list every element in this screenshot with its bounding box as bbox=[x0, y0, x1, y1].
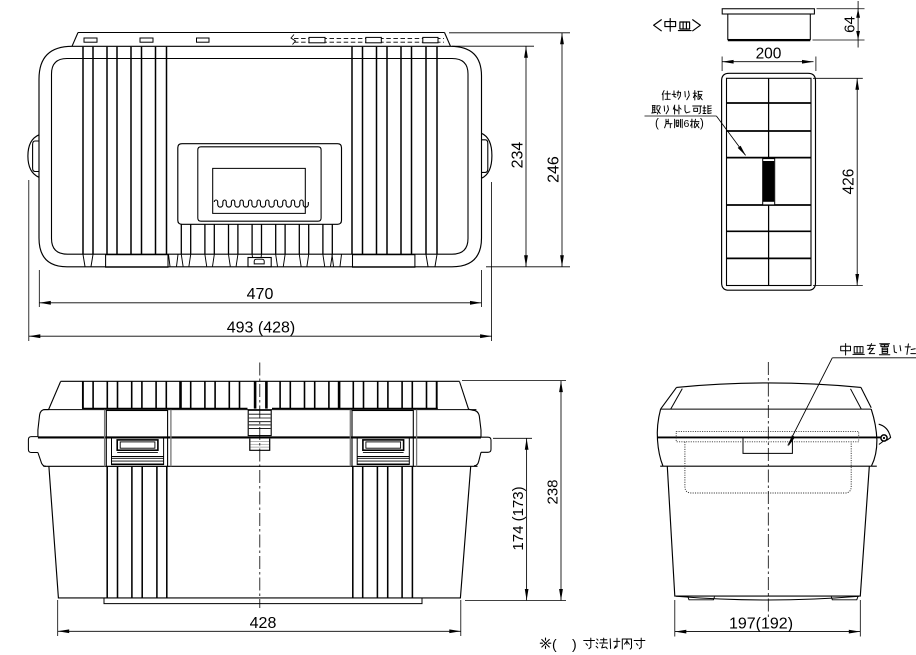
svg-text:493 (428): 493 (428) bbox=[227, 320, 296, 337]
svg-text:200: 200 bbox=[756, 46, 782, 63]
svg-text:428: 428 bbox=[250, 615, 277, 632]
svg-text:234: 234 bbox=[510, 142, 527, 169]
svg-text:197(192): 197(192) bbox=[729, 615, 793, 632]
svg-text:238: 238 bbox=[545, 479, 562, 504]
svg-text:174 (173): 174 (173) bbox=[510, 486, 527, 550]
svg-text:246: 246 bbox=[546, 156, 563, 183]
svg-text:426: 426 bbox=[841, 169, 858, 195]
svg-text:470: 470 bbox=[247, 286, 274, 303]
svg-text:(: ( bbox=[552, 636, 557, 652]
svg-text:6: 6 bbox=[684, 118, 690, 130]
svg-text:64: 64 bbox=[842, 16, 859, 33]
svg-text:): ) bbox=[700, 118, 704, 130]
svg-text:(: ( bbox=[655, 118, 659, 130]
svg-text:): ) bbox=[572, 636, 577, 652]
